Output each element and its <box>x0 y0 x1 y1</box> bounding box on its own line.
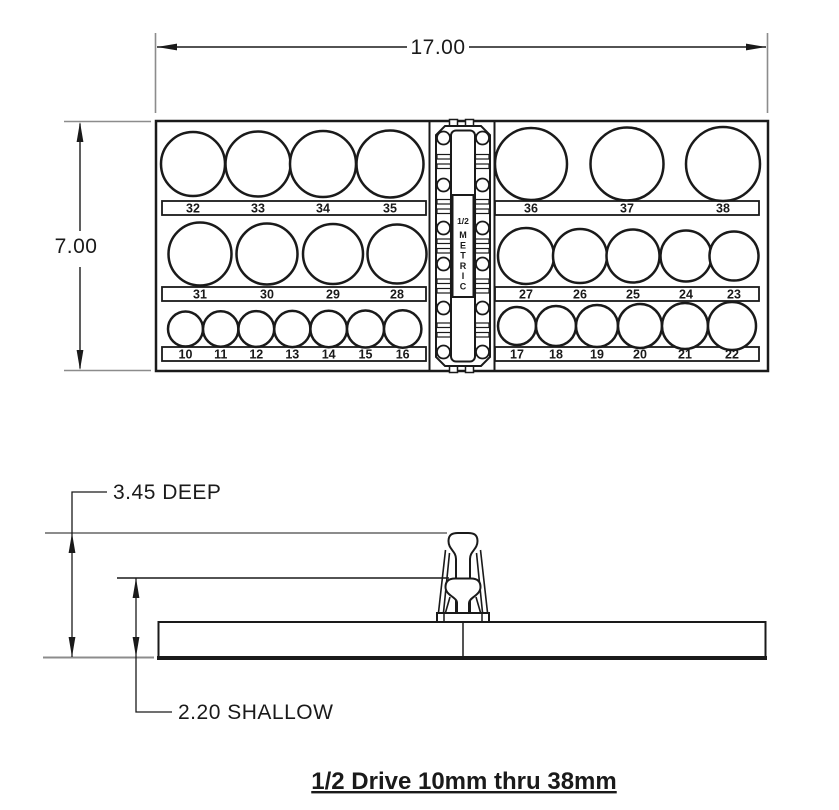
socket-pocket <box>303 224 363 284</box>
socket-size-label: 12 <box>249 348 263 362</box>
socket-size-label: 16 <box>396 348 410 362</box>
hinge-pin-hole <box>437 258 450 271</box>
socket-size-label: 18 <box>549 348 563 362</box>
arrowhead-bottom <box>133 637 140 657</box>
hinge-rib <box>437 209 451 214</box>
socket-size-label: 29 <box>326 288 340 302</box>
socket-size-label: 17 <box>510 348 524 362</box>
socket-size-label: 13 <box>285 348 299 362</box>
socket-pocket <box>347 311 384 348</box>
socket-pocket <box>498 228 554 284</box>
hinge-rib <box>437 239 451 244</box>
hinge-pin-hole <box>476 258 489 271</box>
socket-row-row1-right: 363738 <box>495 127 760 216</box>
socket-size-label: 22 <box>725 348 739 362</box>
hinge-rib <box>437 279 451 284</box>
hinge-system-letter: M <box>459 230 467 240</box>
socket-size-label: 27 <box>519 288 533 302</box>
socket-pocket <box>686 127 760 201</box>
socket-pocket <box>168 312 203 347</box>
socket-size-label: 11 <box>214 348 227 362</box>
socket-pocket <box>238 311 274 347</box>
socket-size-label: 14 <box>322 348 336 362</box>
socket-size-label: 19 <box>590 348 604 362</box>
hinge-rib <box>476 164 490 169</box>
socket-pocket <box>226 132 291 197</box>
hinge-pin-hole <box>437 132 450 145</box>
hinge-system-letter: E <box>460 240 466 250</box>
slab-body <box>159 622 766 657</box>
socket-size-label: 23 <box>727 288 741 302</box>
hinge-pin-hole <box>476 346 489 359</box>
socket-size-label: 36 <box>524 202 538 216</box>
socket-size-label: 20 <box>633 348 647 362</box>
drawing-title: 1/2 Drive 10mm thru 38mm <box>311 768 616 795</box>
socket-pocket <box>384 310 421 347</box>
socket-pocket <box>708 302 756 350</box>
socket-size-label: 31 <box>193 288 207 302</box>
overall-height-value: 7.00 <box>55 235 98 258</box>
hinge-rib <box>476 323 490 328</box>
arrowhead-top <box>133 578 140 598</box>
socket-size-label: 25 <box>626 288 640 302</box>
hinge-pin-hole <box>437 302 450 315</box>
top-view: 17.00 7.00 32333435363738313029282726252… <box>55 33 768 373</box>
hinge-system-letter: T <box>460 251 466 261</box>
socket-pocket <box>536 306 576 346</box>
socket-pocket <box>553 229 607 283</box>
hinge-rib <box>437 249 451 254</box>
socket-pocket <box>203 311 238 346</box>
socket-size-label: 33 <box>251 202 265 216</box>
arrowhead-left <box>157 44 177 51</box>
socket-pocket <box>169 223 232 286</box>
socket-pocket <box>274 311 310 347</box>
hinge-rib <box>476 333 490 338</box>
hinge-rib <box>476 249 490 254</box>
arrowhead-right <box>746 44 766 51</box>
arrowhead-bottom <box>77 350 84 370</box>
post-leg <box>446 597 451 613</box>
label-strip <box>495 347 759 361</box>
socket-size-label: 26 <box>573 288 587 302</box>
socket-size-label: 15 <box>359 348 373 362</box>
drawing-canvas: 17.00 7.00 32333435363738313029282726252… <box>0 0 839 810</box>
arrowhead-bottom <box>69 637 76 657</box>
socket-size-label: 34 <box>316 202 330 216</box>
socket-pocket <box>237 224 298 285</box>
hinge-pin-hole <box>476 302 489 315</box>
hinge-rib <box>437 323 451 328</box>
cad-drawing: 17.00 7.00 32333435363738313029282726252… <box>0 0 839 810</box>
hinge-system-letter: C <box>460 282 467 292</box>
hinge-rib <box>476 155 490 160</box>
socket-pocket <box>161 132 225 196</box>
hinge-rib <box>476 279 490 284</box>
hinge-system-letter: I <box>462 271 465 281</box>
title-text: 1/2 Drive 10mm thru 38mm <box>311 768 616 795</box>
socket-size-label: 32 <box>186 202 200 216</box>
socket-pocket <box>357 131 424 198</box>
hinge-rib <box>476 289 490 294</box>
hinge-pin-hole <box>437 179 450 192</box>
overall-width-value: 17.00 <box>410 36 465 59</box>
arrowhead-top <box>77 122 84 142</box>
socket-pocket <box>495 128 567 200</box>
hinge-pin-hole <box>476 222 489 235</box>
hinge-rib <box>437 333 451 338</box>
shallow-dim-value: 2.20 SHALLOW <box>178 701 333 724</box>
socket-pocket <box>591 128 664 201</box>
socket-size-label: 28 <box>390 288 404 302</box>
socket-pocket <box>661 231 712 282</box>
hinge-pin-hole <box>476 132 489 145</box>
dim-overall-height: 7.00 <box>55 122 151 371</box>
socket-pocket <box>498 307 536 345</box>
hinge-pin-hole <box>437 346 450 359</box>
hinge-rib <box>476 200 490 205</box>
post-base-flange <box>437 613 489 622</box>
socket-size-label: 10 <box>179 348 193 362</box>
socket-pocket <box>310 311 347 348</box>
socket-row-row2-right: 2726252423 <box>495 228 759 302</box>
tray-slab-profile <box>157 622 767 658</box>
socket-pocket <box>710 232 759 281</box>
socket-size-label: 38 <box>716 202 730 216</box>
deep-dim-value: 3.45 DEEP <box>113 481 221 504</box>
hinge-rib <box>437 164 451 169</box>
dim-overall-width: 17.00 <box>156 33 768 113</box>
hinge-rib <box>476 209 490 214</box>
hinge-size-label: 1/2 <box>457 216 469 226</box>
socket-size-label: 21 <box>678 348 692 362</box>
hinge-pin-hole <box>437 222 450 235</box>
socket-pocket <box>576 305 618 347</box>
hinge-rib <box>437 200 451 205</box>
hinge-rib <box>437 155 451 160</box>
post-leg <box>476 597 481 613</box>
socket-size-label: 35 <box>383 202 397 216</box>
hinge-rib <box>476 239 490 244</box>
hinge-pin-hole <box>476 179 489 192</box>
hinge-system-letter: R <box>460 261 467 271</box>
socket-pocket <box>662 303 708 349</box>
socket-size-label: 24 <box>679 288 693 302</box>
side-view: 3.45 DEEP 2.20 SHALLOW <box>43 481 767 724</box>
socket-pocket <box>607 230 660 283</box>
dimension-leader <box>72 492 107 657</box>
socket-pocket <box>290 131 356 197</box>
post-mid-peg <box>446 579 481 614</box>
arrowhead-top <box>69 533 76 553</box>
socket-size-label: 37 <box>620 202 634 216</box>
socket-pocket <box>368 225 427 284</box>
socket-pocket <box>618 304 662 348</box>
socket-size-label: 30 <box>260 288 274 302</box>
hinge: 1/2METRIC <box>436 120 490 373</box>
hinge-rib <box>437 289 451 294</box>
